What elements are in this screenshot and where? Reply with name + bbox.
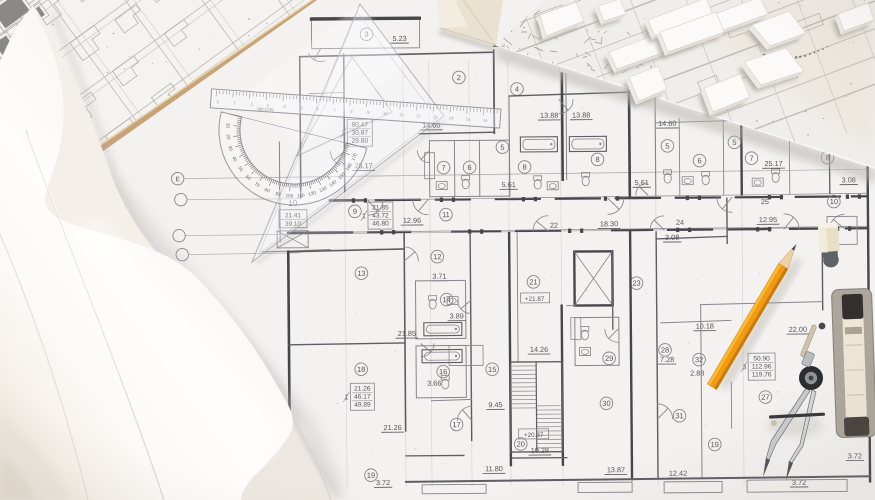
svg-text:20: 20 (517, 440, 525, 449)
svg-text:22: 22 (550, 221, 558, 230)
svg-text:46.80: 46.80 (372, 220, 389, 227)
svg-text:12.95: 12.95 (759, 215, 777, 224)
svg-text:30: 30 (602, 399, 610, 408)
svg-text:12.42: 12.42 (669, 469, 687, 478)
svg-text:5.61: 5.61 (635, 178, 649, 187)
svg-text:9.45: 9.45 (488, 400, 502, 409)
svg-text:31: 31 (675, 411, 683, 420)
svg-text:11: 11 (442, 210, 450, 219)
svg-text:7: 7 (441, 163, 445, 172)
svg-text:17: 17 (452, 420, 460, 429)
svg-text:3.66: 3.66 (427, 379, 441, 388)
svg-text:14.26: 14.26 (530, 345, 548, 354)
svg-text:+20.37: +20.37 (524, 432, 544, 439)
svg-text:20: 20 (226, 134, 232, 140)
svg-text:10.18: 10.18 (696, 321, 714, 330)
svg-text:14.60: 14.60 (658, 119, 676, 128)
svg-text:21: 21 (529, 277, 537, 286)
svg-text:16: 16 (439, 367, 447, 376)
svg-text:7: 7 (749, 154, 753, 163)
svg-text:3.71: 3.71 (432, 272, 446, 281)
svg-text:13.88: 13.88 (540, 111, 558, 120)
svg-text:29: 29 (605, 354, 613, 363)
svg-text:12.96: 12.96 (403, 216, 421, 225)
svg-text:23: 23 (632, 279, 640, 288)
svg-text:12: 12 (433, 252, 441, 261)
svg-text:E: E (175, 176, 180, 183)
svg-text:8: 8 (522, 163, 526, 172)
svg-text:21.85: 21.85 (398, 329, 416, 338)
svg-text:25: 25 (761, 197, 769, 206)
svg-text:19: 19 (367, 471, 375, 480)
svg-text:21.26: 21.26 (383, 423, 401, 432)
svg-text:110: 110 (297, 193, 305, 199)
svg-text:3.72: 3.72 (848, 451, 862, 460)
svg-text:22.00: 22.00 (789, 325, 807, 334)
svg-text:13.87: 13.87 (607, 465, 625, 474)
svg-text:5: 5 (500, 143, 504, 152)
svg-text:1: 1 (362, 213, 366, 220)
svg-text:+21.87: +21.87 (525, 296, 545, 303)
svg-text:5: 5 (732, 138, 736, 147)
svg-text:24: 24 (676, 218, 684, 227)
svg-text:13: 13 (357, 269, 365, 278)
svg-text:5: 5 (665, 141, 669, 150)
svg-text:13.88: 13.88 (572, 110, 590, 119)
svg-text:19: 19 (711, 440, 719, 449)
svg-text:1: 1 (344, 394, 348, 401)
svg-text:11.80: 11.80 (485, 464, 503, 473)
svg-text:46.17: 46.17 (354, 394, 371, 401)
svg-text:10.28: 10.28 (531, 446, 549, 455)
svg-text:100: 100 (285, 193, 293, 199)
svg-text:3.89: 3.89 (450, 311, 464, 320)
svg-text:7.28: 7.28 (660, 355, 674, 364)
svg-text:5.61: 5.61 (502, 180, 516, 189)
svg-text:28: 28 (661, 345, 669, 354)
svg-text:3: 3 (742, 364, 746, 371)
svg-text:3.72: 3.72 (792, 478, 806, 487)
svg-text:50.90: 50.90 (753, 355, 770, 362)
svg-text:25.17: 25.17 (764, 159, 782, 168)
svg-text:18: 18 (357, 365, 365, 374)
svg-text:119.76: 119.76 (752, 371, 772, 378)
svg-text:3.08: 3.08 (665, 233, 679, 242)
svg-text:4: 4 (515, 85, 519, 94)
svg-text:18.30: 18.30 (600, 219, 618, 228)
svg-text:27: 27 (761, 393, 769, 402)
svg-text:2: 2 (457, 73, 461, 82)
svg-text:21.26: 21.26 (354, 386, 371, 393)
svg-text:49.89: 49.89 (354, 402, 371, 409)
svg-text:32: 32 (695, 355, 703, 364)
svg-text:10: 10 (225, 123, 230, 129)
svg-text:15: 15 (488, 365, 496, 374)
svg-text:6: 6 (467, 163, 471, 172)
svg-text:2.88: 2.88 (690, 369, 704, 378)
svg-text:112.96: 112.96 (752, 363, 772, 370)
svg-text:10: 10 (830, 197, 838, 206)
svg-text:5.23: 5.23 (392, 34, 406, 43)
svg-text:8: 8 (595, 155, 599, 164)
svg-text:9: 9 (353, 207, 357, 216)
svg-text:6: 6 (697, 156, 701, 165)
svg-text:3.72: 3.72 (376, 478, 390, 487)
